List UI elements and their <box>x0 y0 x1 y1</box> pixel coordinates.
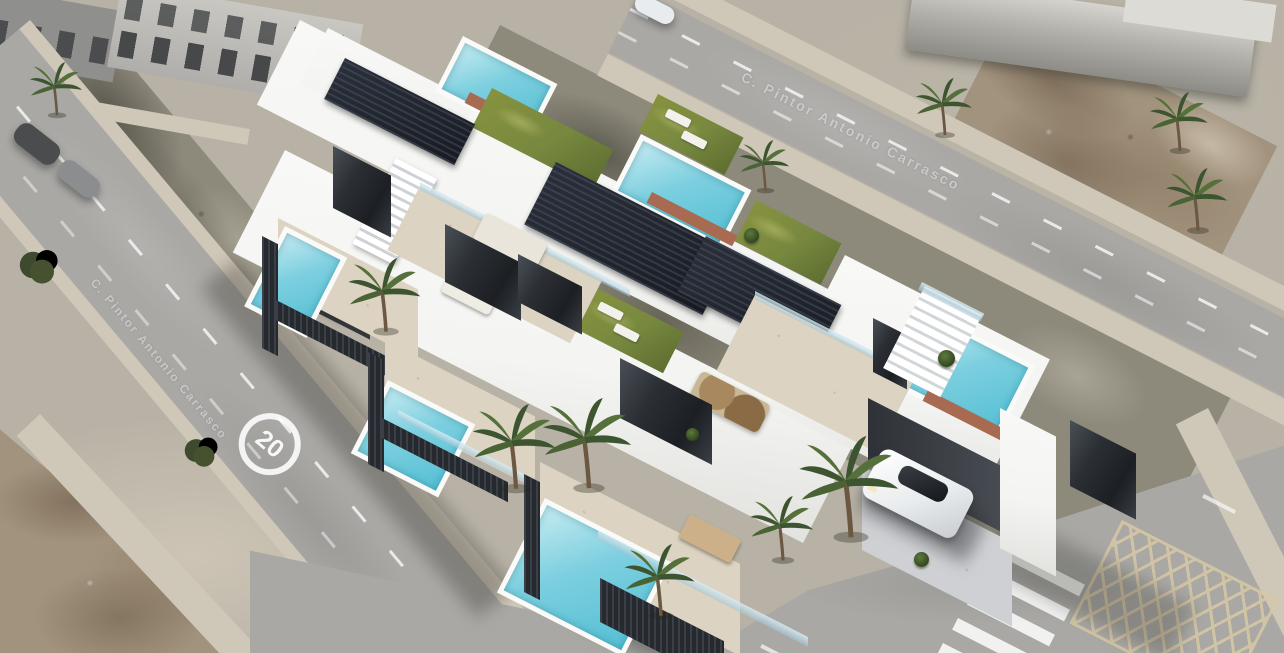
sun-lounger <box>665 108 692 128</box>
street-label-left: C. Pintor Antonio Carrasco <box>88 276 231 442</box>
potted-plant <box>744 228 759 243</box>
privacy-fence <box>262 236 278 356</box>
palm-tree-icon <box>1148 92 1212 156</box>
palm-tree-icon <box>346 258 426 338</box>
potted-plant <box>914 552 929 567</box>
potted-plant <box>686 428 699 441</box>
palm-tree-icon <box>28 62 86 120</box>
palm-tree-icon <box>1164 168 1232 236</box>
palm-tree-icon <box>748 496 818 566</box>
sun-lounger <box>680 130 707 150</box>
palm-tree-icon <box>914 78 976 140</box>
privacy-fence <box>368 352 384 472</box>
aerial-scene: C. Pintor Antonio Carrasco C. Pintor Ant… <box>0 0 1284 653</box>
palm-tree-icon <box>540 398 638 496</box>
bush-icon <box>12 232 72 292</box>
sun-lounger <box>597 301 624 321</box>
sun-lounger <box>613 323 640 343</box>
tree-icon <box>178 422 230 474</box>
palm-tree-icon <box>622 544 700 622</box>
potted-plant <box>938 350 955 367</box>
speed-limit-value: 20 <box>250 424 290 464</box>
carport-side-wall <box>1000 408 1056 577</box>
speed-limit-20-marking: 20 <box>226 400 313 487</box>
